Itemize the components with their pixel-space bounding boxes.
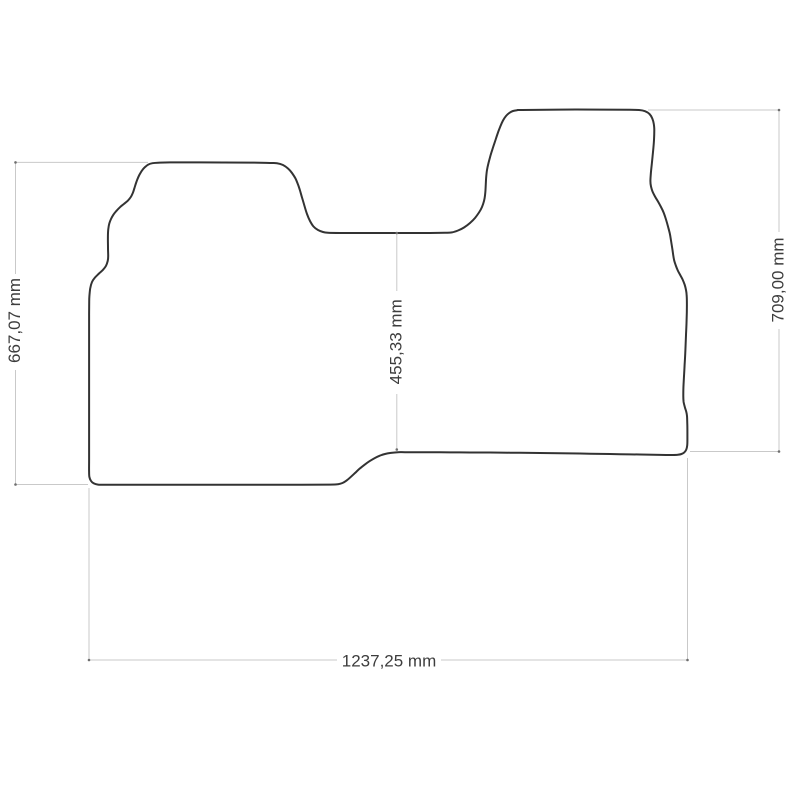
svg-text:667,07 mm: 667,07 mm (5, 278, 24, 363)
svg-text:1237,25 mm: 1237,25 mm (342, 652, 437, 671)
svg-text:709,00 mm: 709,00 mm (769, 237, 788, 322)
svg-text:455,33 mm: 455,33 mm (387, 299, 406, 384)
